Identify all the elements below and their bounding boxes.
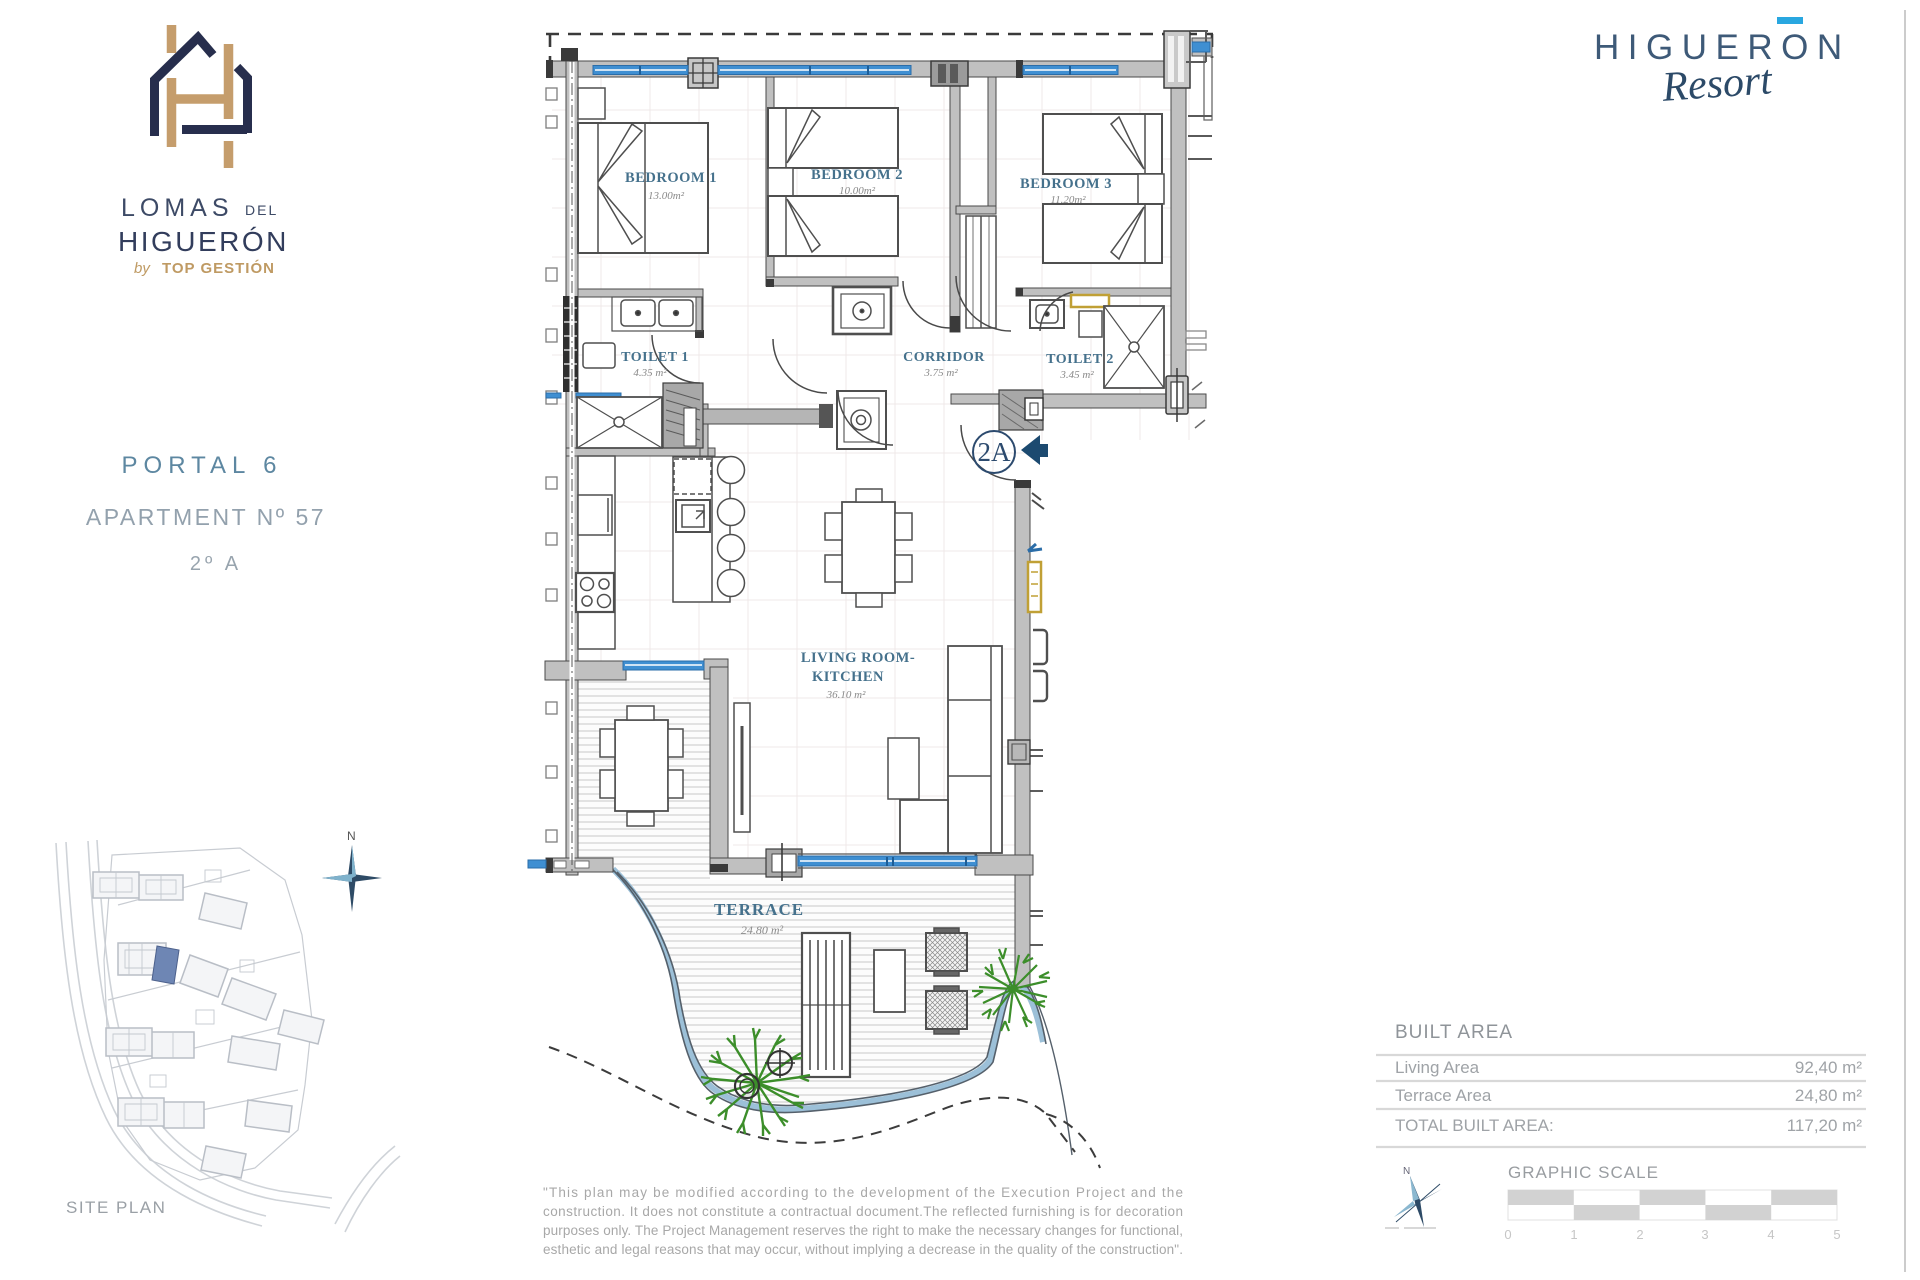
svg-text:Living Area: Living Area xyxy=(1395,1058,1480,1077)
svg-text:36.10 m²: 36.10 m² xyxy=(826,689,866,701)
svg-text:"This plan may be modified acc: "This plan may be modified according to … xyxy=(543,1185,1183,1200)
svg-text:HIGUERÓN: HIGUERÓN xyxy=(118,226,289,257)
svg-text:BEDROOM 3: BEDROOM 3 xyxy=(1020,176,1112,192)
svg-text:N: N xyxy=(1403,1166,1410,1177)
svg-text:10.00m²: 10.00m² xyxy=(839,185,876,197)
svg-text:2A: 2A xyxy=(978,437,1012,467)
svg-text:PORTAL 6: PORTAL 6 xyxy=(122,452,283,479)
svg-text:TOILET 2: TOILET 2 xyxy=(1046,352,1114,367)
svg-text:TERRACE: TERRACE xyxy=(714,900,804,919)
svg-text:3.75 m²: 3.75 m² xyxy=(923,367,958,379)
svg-text:TOP GESTIÓN: TOP GESTIÓN xyxy=(162,259,275,277)
svg-text:24,80 m²: 24,80 m² xyxy=(1795,1086,1862,1105)
svg-text:Resort: Resort xyxy=(1660,57,1775,111)
svg-text:3.45 m²: 3.45 m² xyxy=(1059,369,1094,381)
svg-text:CORRIDOR: CORRIDOR xyxy=(903,350,985,365)
svg-text:by: by xyxy=(134,260,151,277)
svg-text:purposes only. The Project Man: purposes only. The Project Management re… xyxy=(543,1223,1183,1238)
svg-text:TOTAL BUILT AREA:: TOTAL BUILT AREA: xyxy=(1395,1116,1554,1135)
svg-text:BUILT AREA: BUILT AREA xyxy=(1395,1022,1513,1043)
svg-text:GRAPHIC SCALE: GRAPHIC SCALE xyxy=(1508,1163,1659,1182)
svg-text:11.20m²: 11.20m² xyxy=(1050,194,1086,206)
svg-text:2º A: 2º A xyxy=(190,553,242,575)
svg-text:TOILET 1: TOILET 1 xyxy=(621,350,689,365)
svg-text:24.80 m²: 24.80 m² xyxy=(741,923,784,937)
svg-text:2: 2 xyxy=(1636,1227,1643,1242)
svg-text:KITCHEN: KITCHEN xyxy=(812,669,884,685)
svg-text:DEL: DEL xyxy=(245,202,278,218)
svg-text:0: 0 xyxy=(1504,1227,1511,1242)
svg-text:117,20 m²: 117,20 m² xyxy=(1787,1116,1863,1135)
svg-text:BEDROOM 2: BEDROOM 2 xyxy=(811,167,903,183)
svg-text:construction. It does not cons: construction. It does not constitute a c… xyxy=(543,1204,1183,1219)
svg-text:SITE PLAN: SITE PLAN xyxy=(66,1198,166,1217)
svg-text:N: N xyxy=(347,829,356,843)
svg-text:92,40 m²: 92,40 m² xyxy=(1795,1058,1862,1077)
svg-text:1: 1 xyxy=(1570,1227,1577,1242)
svg-text:BEDROOM 1: BEDROOM 1 xyxy=(625,170,717,186)
svg-text:esthetic and legal reasons tha: esthetic and legal reasons that may occu… xyxy=(543,1242,1183,1257)
svg-text:Terrace Area: Terrace Area xyxy=(1395,1086,1492,1105)
svg-text:4.35 m²: 4.35 m² xyxy=(633,367,667,379)
svg-text:5: 5 xyxy=(1833,1227,1840,1242)
svg-text:3: 3 xyxy=(1701,1227,1708,1242)
svg-text:APARTMENT Nº 57: APARTMENT Nº 57 xyxy=(86,504,326,530)
svg-text:LOMAS: LOMAS xyxy=(121,194,234,222)
svg-text:LIVING ROOM-: LIVING ROOM- xyxy=(801,650,915,666)
svg-text:13.00m²: 13.00m² xyxy=(648,190,685,202)
svg-text:4: 4 xyxy=(1767,1227,1774,1242)
